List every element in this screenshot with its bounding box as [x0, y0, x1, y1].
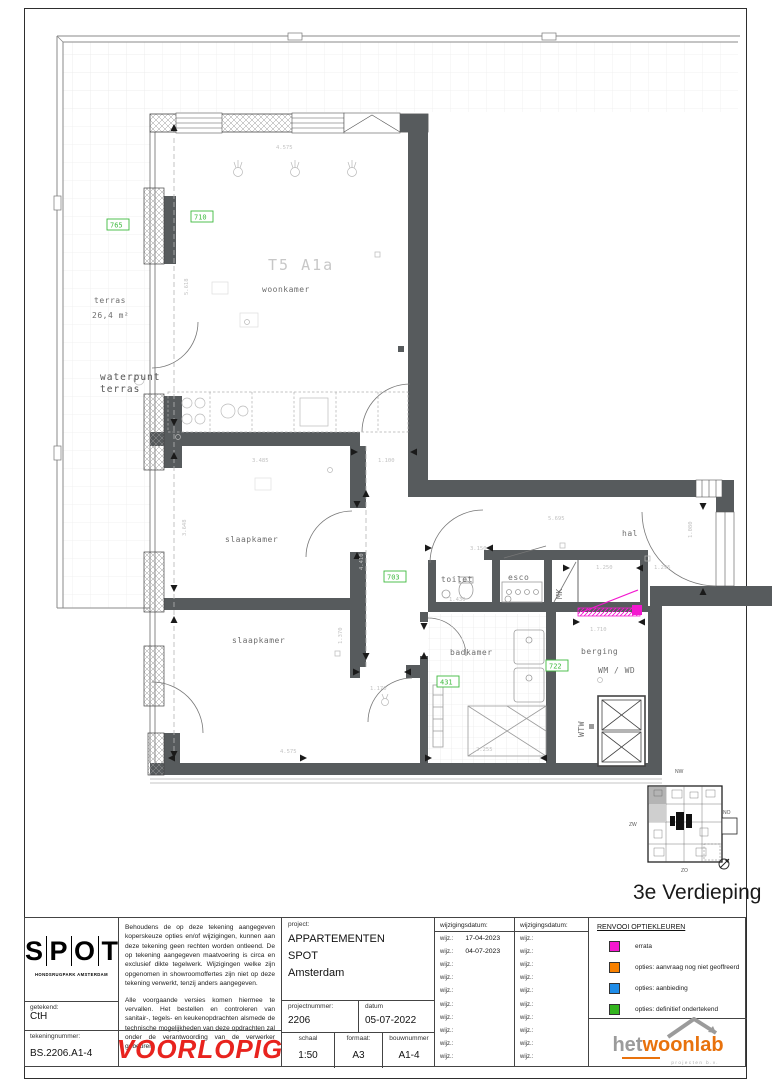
wijzigingen-column-1: wijzigingsdatum: wijz.:17-04-2023wijz.:0…: [434, 918, 514, 1066]
legend-item: opties: definitief ondertekend: [609, 1004, 747, 1015]
railing-clip: [288, 33, 302, 40]
wijz-label: wijz.:: [520, 1015, 533, 1021]
wijz-label: wijz.:: [440, 1054, 453, 1060]
legend-color-swatch: [609, 962, 620, 973]
apartment-type-label: T5 A1a: [268, 256, 334, 274]
svg-text:4.410: 4.410: [359, 553, 365, 570]
wijz-row: wijz.:: [515, 985, 588, 998]
project-line: SPOT: [288, 950, 428, 962]
wijz-label: wijz.:: [440, 936, 453, 942]
railing-clip: [54, 446, 61, 460]
svg-text:NW: NW: [675, 769, 684, 775]
spot-letter: P: [50, 936, 68, 966]
wijz-label: wijz.:: [520, 1054, 533, 1060]
getekend-value: CtH: [30, 1011, 113, 1022]
disclaimer-column: Behoudens de op deze tekening aangegeven…: [118, 918, 281, 1066]
wijz-label: wijz.:: [440, 1015, 453, 1021]
label-terras-area: 26,4 m²: [92, 311, 129, 320]
spot-letter: S: [25, 936, 43, 966]
svg-text:ZO: ZO: [681, 868, 688, 874]
option-code-710: 710: [191, 211, 213, 222]
wijz-row: wijz.:: [435, 1051, 514, 1064]
wijz-label: wijz.:: [520, 936, 533, 942]
wijz-label: wijz.:: [440, 988, 453, 994]
bouwnummer-label: bouwnummer: [383, 1035, 435, 1042]
svg-text:1.430: 1.430: [449, 597, 466, 603]
terrace-door-arc: [152, 322, 198, 368]
wijz-row: wijz.:: [515, 1051, 588, 1064]
drawing-sheet: 765 710 703 431 722 T5 A1a woonkamer: [0, 0, 772, 1092]
svg-text:3.485: 3.485: [252, 458, 269, 464]
legend-item: errata: [609, 941, 747, 952]
wijz-row: wijz.:: [435, 998, 514, 1011]
wijz-row: wijz.:: [515, 932, 588, 945]
highlighted-unit: [649, 787, 666, 804]
svg-text:703: 703: [387, 574, 400, 582]
project-label: project:: [288, 921, 428, 928]
spot-logo-subtitle: HONDSRUGPARK AMSTERDAM: [25, 972, 118, 977]
room-label-esco: esco: [508, 573, 529, 582]
projectnummer-value: 2206: [288, 1015, 352, 1026]
wijz-row: wijz.:04-07-2023: [435, 945, 514, 958]
zone-lines: [174, 138, 366, 758]
svg-text:1.250: 1.250: [596, 565, 613, 571]
wijz-label: wijz.:: [440, 949, 453, 955]
svg-text:5.618: 5.618: [184, 278, 190, 295]
wijzigingsdatum-label: wijzigingsdatum:: [515, 918, 588, 932]
svg-text:4.575: 4.575: [280, 749, 297, 755]
room-label-slaapkamer1: slaapkamer: [225, 535, 278, 544]
woonlab-logo: hetwoonlab projecten b.v.: [589, 1018, 747, 1066]
svg-text:1.295: 1.295: [654, 565, 671, 571]
railing-clip: [54, 196, 61, 210]
option-code-431: 431: [437, 676, 459, 687]
wijz-label: wijz.:: [440, 975, 453, 981]
svg-text:ZW: ZW: [629, 822, 637, 828]
room-label-toilet: toilet: [441, 575, 473, 584]
railing-clip: [542, 33, 556, 40]
legend-title: RENVOOI OPTIEKLEUREN: [589, 918, 747, 931]
wijz-row: wijz.:17-04-2023: [435, 932, 514, 945]
livingroom-door-arc: [362, 384, 410, 432]
wijz-row: wijz.:: [515, 958, 588, 971]
wijz-row: wijz.:: [435, 1038, 514, 1051]
woonlab-roof-icon: [664, 1017, 724, 1039]
svg-text:3.648: 3.648: [182, 519, 188, 536]
legend-item-label: opties: aanvraag nog niet geoffreerd: [635, 964, 739, 971]
wijz-label: wijz.:: [520, 1002, 533, 1008]
formaat-label: formaat:: [335, 1035, 382, 1042]
wijz-row: wijz.:: [515, 972, 588, 985]
pendant-light: [291, 160, 300, 177]
spot-logo: SPOT: [25, 936, 118, 966]
legend-column: RENVOOI OPTIEKLEUREN errataopties: aanvr…: [588, 918, 747, 1066]
svg-text:722: 722: [549, 663, 562, 671]
project-column: project: APPARTEMENTEN SPOT Amsterdam pr…: [281, 918, 434, 1066]
legend-item: opties: aanvraag nog niet geoffreerd: [609, 962, 747, 973]
wijz-label: wijz.:: [520, 962, 533, 968]
tekeningnummer-value: BS.2206.A1-4: [30, 1048, 113, 1059]
wijz-label: wijz.:: [520, 988, 533, 994]
svg-text:1.370: 1.370: [338, 627, 344, 644]
wijz-row: wijz.:: [515, 1024, 588, 1037]
label-waterpunt-2: terras: [100, 384, 140, 395]
wijz-rows-1: wijz.:17-04-2023wijz.:04-07-2023wijz.:wi…: [435, 932, 514, 1064]
svg-text:1.710: 1.710: [590, 627, 607, 633]
toilet-door-arc: [430, 510, 483, 563]
option-code-765: 765: [107, 219, 129, 230]
wijz-date: 04-07-2023: [465, 948, 500, 955]
legend-item-label: opties: definitief ondertekend: [635, 1006, 718, 1013]
project-line: Amsterdam: [288, 967, 428, 979]
north-arrow-icon: [719, 859, 729, 869]
logo-column: SPOT HONDSRUGPARK AMSTERDAM getekend: Ct…: [25, 918, 118, 1066]
svg-text:1.170: 1.170: [370, 686, 387, 692]
wijz-rows-2: wijz.:wijz.:wijz.:wijz.:wijz.:wijz.:wijz…: [515, 932, 588, 1064]
wijz-row: wijz.:: [435, 958, 514, 971]
wijz-label: wijz.:: [520, 949, 533, 955]
woonlab-underline: [622, 1057, 660, 1059]
wtw-unit: [589, 724, 594, 729]
title-block: SPOT HONDSRUGPARK AMSTERDAM getekend: Ct…: [24, 917, 746, 1067]
svg-text:4.575: 4.575: [276, 145, 293, 151]
floor-title: 3e Verdieping: [633, 881, 761, 904]
wijz-date: 17-04-2023: [465, 935, 500, 942]
svg-text:5.695: 5.695: [548, 516, 565, 522]
wijz-row: wijz.:: [515, 1038, 588, 1051]
entrance-door-frame: [716, 512, 734, 586]
room-label-woonkamer: woonkamer: [262, 285, 310, 294]
label-wm-wd: WM / WD: [598, 666, 635, 675]
tekeningnummer-label: tekeningnummer:: [30, 1033, 113, 1040]
formaat-value: A3: [335, 1050, 382, 1061]
spot-letter: T: [102, 936, 119, 966]
wijz-label: wijz.:: [520, 975, 533, 981]
bedroom1-door-arc: [306, 511, 352, 557]
left-facade: [144, 132, 164, 775]
voorlopig-stamp: VOORLOPIG: [119, 1031, 281, 1068]
svg-text:2.255: 2.255: [476, 747, 493, 753]
svg-text:NO: NO: [723, 810, 731, 816]
wijz-row: wijz.:: [435, 985, 514, 998]
floor-plan: 765 710 703 431 722 T5 A1a woonkamer: [0, 0, 772, 912]
wijz-row: wijz.:: [435, 1024, 514, 1037]
room-label-hal: hal: [622, 529, 638, 538]
wijz-row: wijz.:: [515, 1011, 588, 1024]
svg-text:1.080: 1.080: [688, 521, 694, 538]
legend-item-label: opties: aanbieding: [635, 985, 688, 992]
svg-text:710: 710: [194, 214, 207, 222]
room-label-slaapkamer2: slaapkamer: [232, 636, 285, 645]
bouwnummer-value: A1-4: [383, 1050, 435, 1061]
wijz-label: wijz.:: [440, 1002, 453, 1008]
bedroom2-door-arc: [368, 678, 412, 722]
woonlab-subtitle: projecten b.v.: [589, 1060, 747, 1065]
projectnummer-label: projectnummer:: [288, 1003, 352, 1010]
wijz-label: wijz.:: [440, 962, 453, 968]
datum-label: datum: [365, 1003, 429, 1010]
wijz-label: wijz.:: [440, 1028, 453, 1034]
spot-letter: O: [74, 936, 95, 966]
shaft: [598, 696, 645, 766]
legend-item: opties: aanbieding: [609, 983, 747, 994]
disclaimer-paragraph: Behoudens de op deze tekening aangegeven…: [125, 923, 275, 989]
entrance-door-arc: [642, 512, 716, 586]
label-wtw: WTW: [577, 721, 586, 737]
esco-appliance: [502, 582, 542, 602]
legend-items: errataopties: aanvraag nog niet geoffree…: [589, 941, 747, 1015]
wijz-label: wijz.:: [440, 1041, 453, 1047]
entrance-frame: [696, 480, 722, 497]
woonlab-text-het: het: [612, 1034, 642, 1056]
pendant-light: [234, 160, 243, 177]
room-label-berging: berging: [581, 647, 618, 656]
option-code-703: 703: [384, 571, 406, 582]
wijz-row: wijz.:: [435, 972, 514, 985]
schaal-value: 1:50: [282, 1050, 334, 1061]
legend-item-label: errata: [635, 943, 652, 950]
label-terras: terras: [94, 296, 126, 305]
wijz-label: wijz.:: [520, 1028, 533, 1034]
pendant-light: [348, 160, 357, 177]
wijz-row: wijz.:: [515, 945, 588, 958]
legend-color-swatch: [609, 1004, 620, 1015]
svg-text:765: 765: [110, 222, 123, 230]
getekend-label: getekend:: [30, 1004, 113, 1011]
datum-value: 05-07-2022: [365, 1015, 429, 1026]
label-waterpunt-1: waterpunt: [100, 372, 160, 383]
room-label-badkamer: badkamer: [450, 648, 493, 657]
wijz-label: wijz.:: [520, 1041, 533, 1047]
legend-color-swatch: [609, 941, 620, 952]
wijz-row: wijz.:: [515, 998, 588, 1011]
wijz-row: wijz.:: [435, 1011, 514, 1024]
legend-color-swatch: [609, 983, 620, 994]
wijzigingsdatum-label: wijzigingsdatum:: [435, 918, 514, 932]
svg-text:1.100: 1.100: [378, 458, 395, 464]
option-code-722: 722: [546, 660, 568, 671]
schaal-label: schaal: [282, 1035, 334, 1042]
project-line: APPARTEMENTEN: [288, 933, 428, 945]
svg-text:431: 431: [440, 679, 453, 687]
wijzigingen-column-2: wijzigingsdatum: wijz.:wijz.:wijz.:wijz.…: [514, 918, 588, 1066]
svg-text:3.150: 3.150: [470, 546, 487, 552]
label-mk: MK: [555, 588, 564, 599]
key-plan: NW ZW NO ZO 3e Verdi: [629, 769, 761, 904]
